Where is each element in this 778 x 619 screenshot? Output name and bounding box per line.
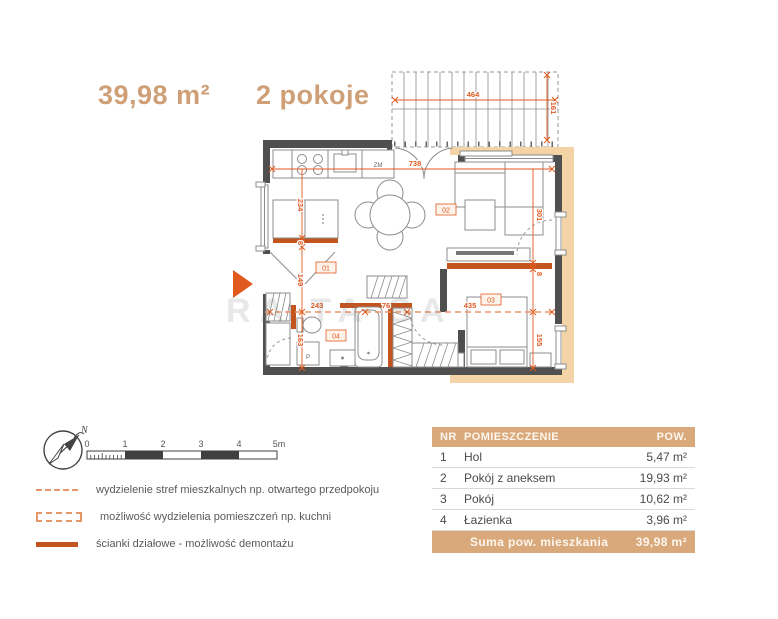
cell-nr: 2 [440, 471, 464, 485]
scale-tick: 0 [84, 439, 89, 449]
legend-item: możliwość wydzielenia pomieszczeń np. ku… [36, 510, 406, 524]
dim-kitchen-height: 234 [296, 199, 305, 212]
floorplan-page: 39,98 m² 2 pokoje [0, 0, 778, 619]
table-header-row: NR POMIESZCZENIE POW. [432, 427, 695, 447]
cell-nr: 3 [440, 492, 464, 506]
cell-nr: 1 [440, 450, 464, 464]
dim-wall-right: 8 [535, 272, 544, 276]
dashed-box-icon [36, 512, 82, 522]
scale-tick: 1 [122, 439, 127, 449]
dim-top-width: 738 [409, 159, 422, 168]
scale-tick: 5m [273, 439, 286, 449]
dim-living-depth: 301 [535, 209, 544, 222]
dishwasher-icon: ZM [362, 150, 394, 178]
legend: wydzielenie stref mieszkalnych np. otwar… [36, 483, 406, 564]
north-label: N [80, 425, 89, 436]
sink-icon [328, 150, 362, 178]
dim-wall-left: 8 [296, 241, 305, 245]
sum-label: Suma pow. mieszkania [440, 535, 617, 549]
wall-shelf [460, 151, 512, 156]
table-row: 2 Pokój z aneksem 19,93 m² [432, 468, 695, 489]
dishwasher-label: ZM [374, 163, 383, 169]
sum-value: 39,98 m² [617, 535, 687, 549]
stove-icon [292, 150, 328, 178]
cell-name: Pokój [464, 492, 617, 506]
header-name: POMIESZCZENIE [464, 431, 617, 443]
room-area-table: NR POMIESZCZENIE POW. 1 Hol 5,47 m² 2 Po… [432, 427, 695, 553]
bedroom-wardrobe-icon [412, 343, 458, 367]
cell-name: Łazienka [464, 513, 617, 527]
cell-nr: 4 [440, 513, 464, 527]
dim-bath-height: 163 [296, 334, 305, 347]
legend-item: ścianki działowe - możliwość demontażu [36, 537, 406, 551]
dim-hall-height: 149 [296, 274, 305, 287]
legend-label: możliwość wydzielenia pomieszczeń np. ku… [100, 511, 331, 523]
cell-area: 19,93 m² [617, 471, 687, 485]
cell-area: 3,96 m² [617, 513, 687, 527]
legend-label: ścianki działowe - możliwość demontażu [96, 538, 293, 550]
washer-label: P [306, 355, 310, 361]
cell-name: Hol [464, 450, 617, 464]
living-room-furniture [447, 151, 543, 261]
solid-wall-icon [36, 542, 78, 547]
side-table-icon [465, 200, 495, 230]
cell-area: 5,47 m² [617, 450, 687, 464]
cell-area: 10,62 m² [617, 492, 687, 506]
floorplan-drawing: ZM [225, 60, 585, 395]
dim-balcony-depth: 161 [549, 102, 558, 115]
scale-tick: 3 [198, 439, 203, 449]
cell-name: Pokój z aneksem [464, 471, 617, 485]
dining-table-icon [355, 180, 425, 250]
watermark: RA TA SA [226, 292, 574, 331]
table-row: 3 Pokój 10,62 m² [432, 489, 695, 510]
room-label-living: 02 [442, 208, 450, 215]
table-row: 1 Hol 5,47 m² [432, 447, 695, 468]
scale-tick: 2 [160, 439, 165, 449]
washbasin-icon [330, 350, 355, 366]
dim-bedroom-depth: 155 [535, 334, 544, 347]
header-area: POW. [617, 431, 687, 443]
room-label-hol: 01 [322, 266, 330, 273]
page-title-area: 39,98 m² [98, 80, 210, 111]
balcony [392, 72, 558, 147]
scale-bar: 0 1 2 3 4 5m [84, 436, 294, 470]
dim-balcony-width: 464 [467, 90, 480, 99]
scale-tick: 4 [236, 439, 241, 449]
room-label-bath: 04 [332, 334, 340, 341]
legend-item: wydzielenie stref mieszkalnych np. otwar… [36, 483, 406, 497]
legend-label: wydzielenie stref mieszkalnych np. otwar… [96, 484, 379, 496]
header-nr: NR [440, 431, 464, 443]
table-row: 4 Łazienka 3,96 m² [432, 510, 695, 531]
compass-needle-icon [64, 435, 79, 451]
dashed-line-icon [36, 489, 78, 491]
balcony-door-arc [424, 148, 453, 179]
table-sum-row: Suma pow. mieszkania 39,98 m² [432, 531, 695, 553]
